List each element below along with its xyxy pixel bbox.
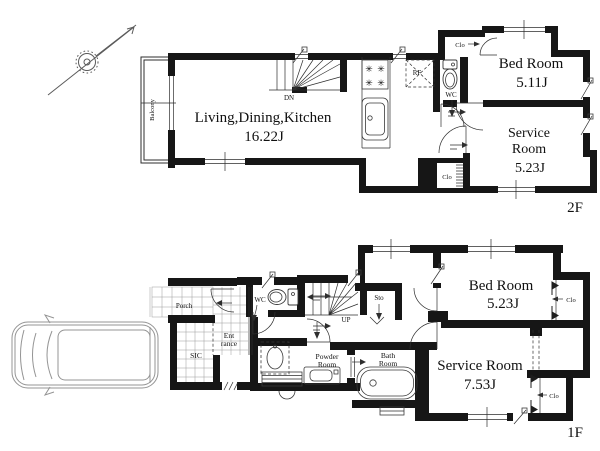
- closet-1f-bottom: Clo: [531, 375, 559, 413]
- powder-door: [307, 319, 330, 342]
- burner-icon: ✳: [365, 78, 373, 88]
- bathtub-icon: [357, 367, 417, 399]
- closet-2f-top: Clo: [455, 38, 497, 55]
- sic-label: SIC: [190, 351, 202, 360]
- floor-2f: ✳ ✳ ✳ ✳ RF Clo C: [141, 20, 597, 216]
- window-top-kitchen-icon: [391, 47, 406, 63]
- washing-machine-icon: [304, 367, 340, 384]
- window-bedroom-top-icon: [468, 239, 515, 259]
- vent-bump-icon: [279, 391, 295, 399]
- sink-icon: [362, 98, 388, 140]
- window-ldk-south-icon: [205, 152, 245, 171]
- room-label-service-2f-line2: Room: [512, 142, 546, 157]
- compass-north-icon: [48, 25, 136, 95]
- room-area-service-2f: 5.23J: [515, 161, 546, 176]
- refrigerator-space: RF: [406, 60, 434, 87]
- balcony-label: Balcony: [149, 98, 156, 120]
- refrigerator-label: RF: [413, 69, 422, 77]
- window-hall-top-icon: [373, 239, 410, 259]
- room-area-bedroom-2f: 5.11J: [516, 75, 548, 91]
- window-top-left-icon: [293, 47, 308, 63]
- floorplan-canvas: ✳ ✳ ✳ ✳ RF Clo C: [0, 0, 600, 451]
- room-label-service-1f: Service Room: [437, 358, 523, 374]
- room-area-ldk: 16.22J: [244, 129, 284, 145]
- storage-label: Sto: [374, 294, 384, 302]
- toilet-icon: [268, 289, 298, 305]
- stairs-1f: [305, 283, 358, 315]
- kitchen-counter: ✳ ✳ ✳ ✳: [362, 57, 390, 148]
- powder-room-label-line2: Room: [318, 360, 337, 369]
- bath-window-bump-icon: [380, 407, 404, 415]
- closet-2f-bottom: Clo: [442, 165, 463, 186]
- closet-1f-right: Clo: [552, 280, 576, 320]
- window-wc-top-icon: [262, 272, 275, 288]
- burner-icon: ✳: [377, 64, 385, 74]
- wc-label-2f: WC: [445, 91, 457, 99]
- burner-icon: ✳: [377, 78, 385, 88]
- balcony: [141, 57, 171, 163]
- room-label-service-2f-line1: Service: [508, 126, 550, 141]
- floor-2f-label: 2F: [567, 200, 583, 216]
- window-bedroom-top-icon: [504, 20, 545, 39]
- vent-sic-icon: [222, 382, 238, 390]
- car-icon: [12, 315, 158, 395]
- toilet-icon: [443, 60, 457, 89]
- window-service-bottom-icon: [468, 407, 507, 427]
- porch-label: Porch: [176, 302, 193, 310]
- stairs-label-dn: DN: [284, 94, 294, 102]
- room-label-bedroom-2f: Bed Room: [499, 56, 564, 72]
- floorplan-page: ✳ ✳ ✳ ✳ RF Clo C: [0, 0, 600, 451]
- doors-2f: [439, 103, 483, 153]
- stairs-2f: [269, 60, 340, 90]
- closet-label: Clo: [442, 174, 451, 181]
- window-service-south-icon: [498, 180, 535, 199]
- room-label-ldk: Living,Dining,Kitchen: [195, 110, 332, 126]
- wc-label-1f: WC: [254, 296, 266, 304]
- closet-label: Clo: [549, 393, 558, 400]
- storage-sto: Sto: [370, 294, 384, 324]
- burner-icon: ✳: [365, 64, 373, 74]
- entrance-label-line2: rance: [221, 339, 238, 348]
- stove-icon: ✳ ✳ ✳ ✳: [362, 60, 388, 89]
- closet-label: Clo: [566, 297, 575, 304]
- bath-room-label-line2: Room: [379, 359, 398, 368]
- stairs-label-up: UP: [342, 316, 351, 324]
- floor-1f: Sto WC: [150, 239, 590, 441]
- entrance-door: [211, 289, 234, 312]
- floor-1f-label: 1F: [567, 425, 583, 441]
- room-label-bedroom-1f: Bed Room: [469, 278, 534, 294]
- window-service-corner-icon: [513, 408, 527, 424]
- closet-label: Clo: [455, 42, 464, 49]
- window-balcony-icon: [141, 76, 176, 130]
- room-area-service-1f: 7.53J: [464, 377, 496, 393]
- room-area-bedroom-1f: 5.23J: [487, 296, 519, 312]
